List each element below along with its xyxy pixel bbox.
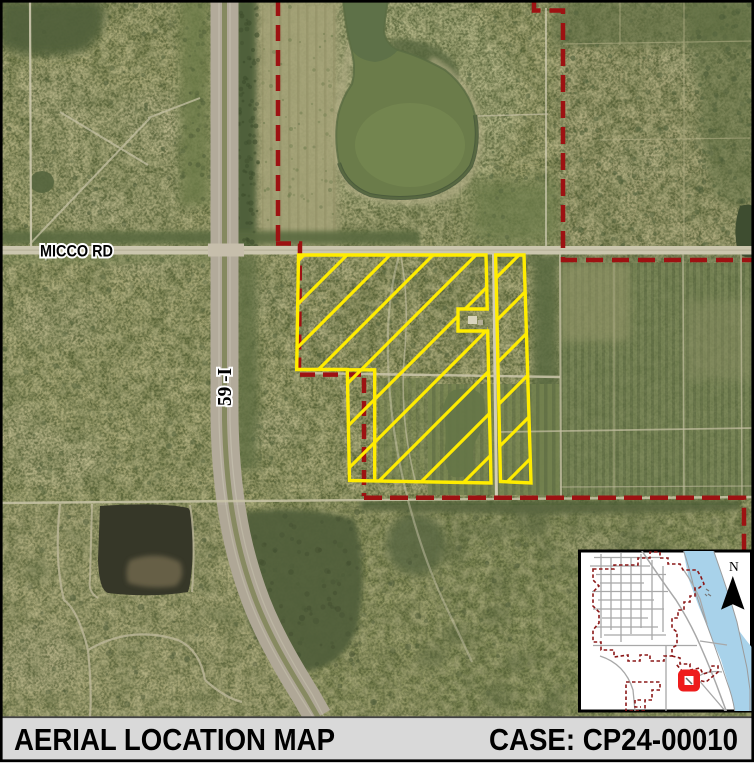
svg-text:AERIAL LOCATION MAP: AERIAL LOCATION MAP [14, 722, 335, 757]
svg-text:MICCO RD: MICCO RD [40, 242, 113, 261]
svg-text:59 -I: 59 -I [214, 368, 236, 406]
svg-text:N: N [729, 559, 739, 574]
svg-text:CASE: CP24-00010: CASE: CP24-00010 [489, 722, 738, 757]
